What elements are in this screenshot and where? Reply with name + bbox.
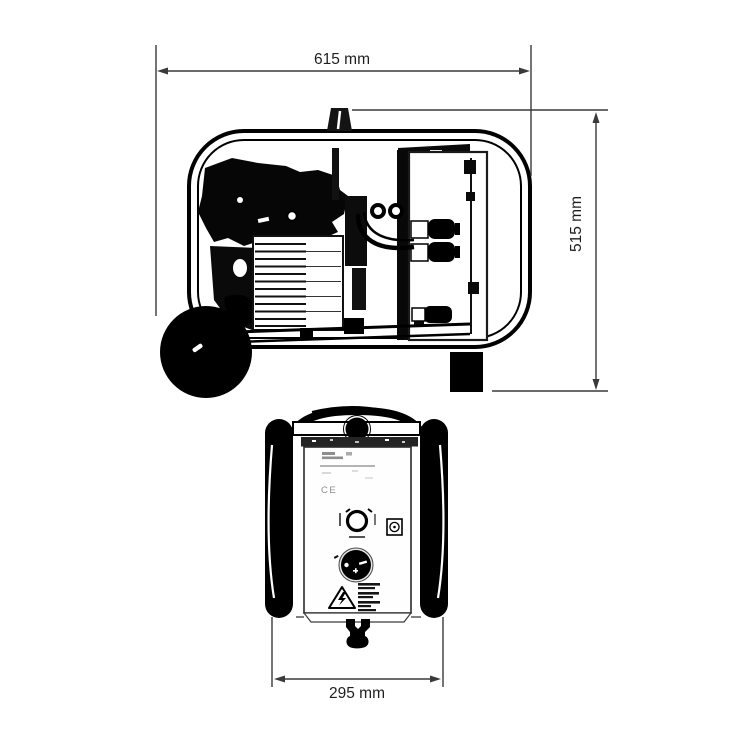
bolt-head (288, 212, 297, 221)
speckle (233, 259, 247, 277)
front-view: CE (265, 407, 448, 648)
speckle (237, 197, 243, 203)
ce-mark-label: CE (321, 485, 337, 496)
dimension-width-label: 615 mm (314, 51, 370, 68)
eyelet (390, 205, 402, 217)
dimension-height-label: 515 mm (568, 196, 585, 252)
handle-stub (327, 108, 352, 131)
eyelet (372, 205, 384, 217)
support-foot (450, 352, 483, 392)
side-view (160, 108, 530, 398)
technical-drawing: CE (0, 0, 750, 750)
drawing-canvas: CE (0, 0, 750, 750)
dimension-depth-label: 295 mm (329, 685, 385, 702)
support-rod (332, 148, 339, 200)
drain-fitting (346, 619, 370, 648)
depth-dimension (272, 617, 443, 687)
motor-finned-cylinder (253, 236, 343, 330)
wheel (160, 306, 252, 398)
vent-strip (301, 437, 418, 447)
base-flange (296, 613, 421, 622)
accessory-socket (387, 519, 402, 535)
lower-bracket (352, 268, 366, 310)
